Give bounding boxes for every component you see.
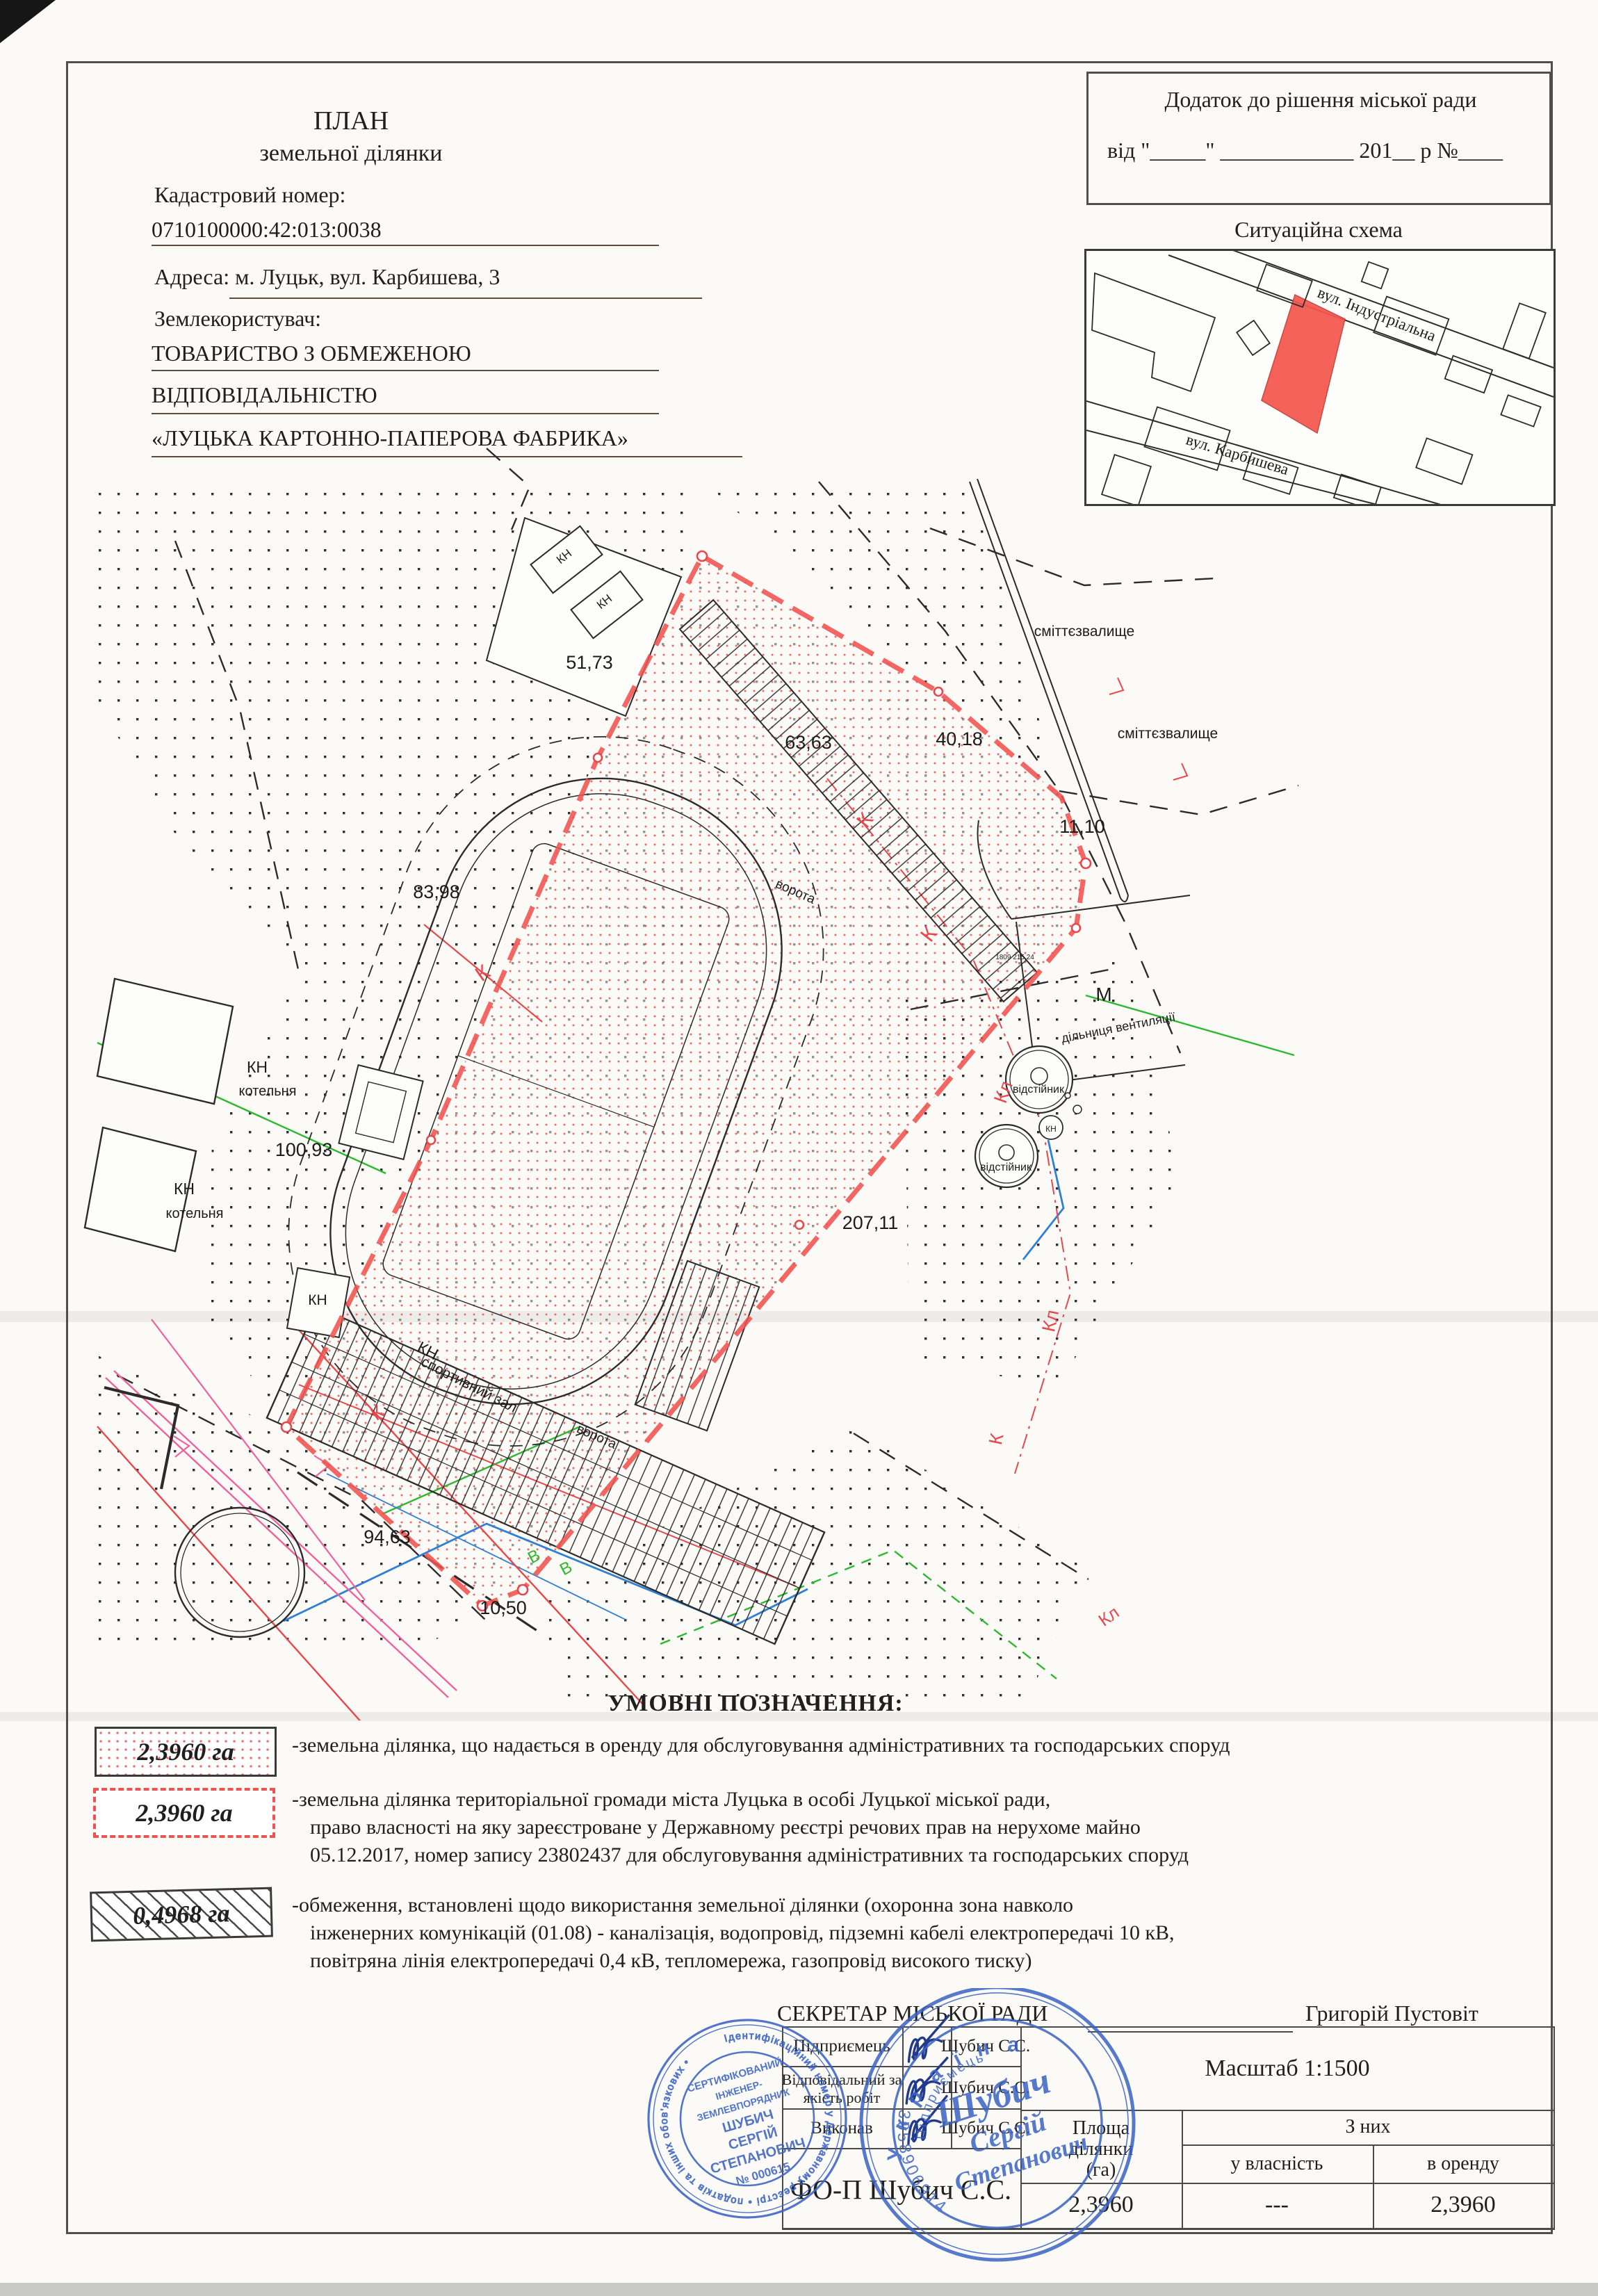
legend-text: право власності на яку зареєстроване у Д… xyxy=(310,1816,1141,1839)
legend-heading: УМОВНІ ПОЗНАЧЕННЯ: xyxy=(608,1691,903,1717)
land-user-line1: ТОВАРИСТВО З ОБМЕЖЕНОЮ xyxy=(152,341,471,366)
legend-text: -земельна ділянка територіальної громади… xyxy=(292,1788,1050,1811)
cadastral-number: 0710100000:42:013:0038 xyxy=(152,217,382,243)
page-subtitle: земельної ділянки xyxy=(259,140,442,167)
scheme-title: Ситуаційна схема xyxy=(1234,217,1403,243)
map-label: котельня xyxy=(165,1206,223,1221)
map-label: КН xyxy=(247,1058,268,1076)
annex-line1: Додаток до рішення міської ради xyxy=(1164,87,1476,113)
page-title: ПЛАН xyxy=(313,106,389,136)
map-label: Кл xyxy=(1038,1308,1063,1334)
annex-line2: від "_____" ____________ 201__ р №____ xyxy=(1107,138,1503,163)
map-label: 51,73 xyxy=(566,652,613,673)
underline xyxy=(229,298,702,299)
map-label: 63,63 xyxy=(785,732,832,753)
legend-text: 05.12.2017, номер запису 23802437 для об… xyxy=(310,1843,1189,1867)
map-label: 207,11 xyxy=(842,1212,899,1233)
map-label: 94,63 xyxy=(364,1526,411,1547)
land-plan-map: сміттєзвалищесміттєзвалище63,6351,7340,1… xyxy=(42,428,1303,1720)
underline xyxy=(152,245,659,246)
legend-swatch-community: 2,3960 га xyxy=(93,1788,275,1838)
area-lease-value: 2,3960 xyxy=(1430,2192,1496,2218)
scheme-parcel-highlight xyxy=(1262,295,1345,433)
map-label: 100,93 xyxy=(275,1139,333,1160)
cadastral-label: Кадастровий номер: xyxy=(154,182,345,208)
map-label: 10,50 xyxy=(480,1597,527,1618)
legend-text: -обмеження, встановлені щодо використанн… xyxy=(292,1894,1073,1917)
map-label: відстійник xyxy=(980,1162,1032,1173)
map-label: 1809 215,24 xyxy=(995,954,1034,961)
ownership-header: у власність xyxy=(1231,2153,1323,2175)
map-label: відстійник xyxy=(1013,1084,1065,1096)
map-label: 83,98 xyxy=(413,881,460,902)
of-them-header: З них xyxy=(1346,2116,1391,2138)
scanned-land-plan-document: ПЛАН земельної ділянки Кадастровий номер… xyxy=(0,0,1598,2296)
land-user-line2: ВІДПОВІДАЛЬНІСТЮ xyxy=(152,382,377,408)
lease-header: в оренду xyxy=(1427,2153,1499,2175)
map-label: К xyxy=(985,1431,1008,1447)
legend-text: повітряна лінія електропередачі 0,4 кВ, … xyxy=(310,1949,1032,1973)
map-label: сміттєзвалище xyxy=(1034,624,1135,640)
scan-corner-artifact xyxy=(0,0,56,43)
secretary-name: Григорій Пустовіт xyxy=(1305,2001,1478,2026)
map-label: КН xyxy=(174,1180,195,1198)
map-label: 40,18 xyxy=(936,728,983,749)
legend-area-value: 0,4968 га xyxy=(133,1898,230,1930)
stamps-overlay: Ідентифікаційний номер у Державному реєс… xyxy=(542,1988,1209,2294)
map-label: Кл xyxy=(1095,1603,1123,1631)
underline xyxy=(152,370,659,371)
legend-swatch-lease: 2,3960 га xyxy=(95,1727,277,1777)
map-label: 11,10 xyxy=(1059,816,1105,837)
map-label: М xyxy=(1095,984,1111,1005)
land-user-label: Землекористувач: xyxy=(154,306,321,332)
underline xyxy=(152,413,659,414)
area-ownership-value: --- xyxy=(1265,2192,1289,2218)
engineer-stamp: Ідентифікаційний номер у Державному реєс… xyxy=(625,1996,869,2240)
legend-text: -земельна ділянка, що надається в оренду… xyxy=(292,1734,1230,1757)
legend-area-value: 2,3960 га xyxy=(137,1737,234,1766)
legend-area-value: 2,3960 га xyxy=(136,1798,232,1827)
fop-stamp: У к р а ї н а Підприємець 3058906914 Шуб… xyxy=(840,1988,1155,2281)
address: Адреса: м. Луцьк, вул. Карбишева, 3 xyxy=(154,264,500,290)
legend-text: інженерних комунікацій (01.08) - каналіз… xyxy=(310,1921,1175,1945)
scale-cell: Масштаб 1:1500 xyxy=(1205,2055,1369,2082)
map-label: КН xyxy=(308,1292,327,1308)
legend-swatch-restrictions: 0,4968 га xyxy=(90,1887,273,1942)
map-label: котельня xyxy=(238,1084,296,1099)
map-label: сміттєзвалище xyxy=(1118,726,1218,742)
map-label: КН xyxy=(1045,1124,1057,1134)
